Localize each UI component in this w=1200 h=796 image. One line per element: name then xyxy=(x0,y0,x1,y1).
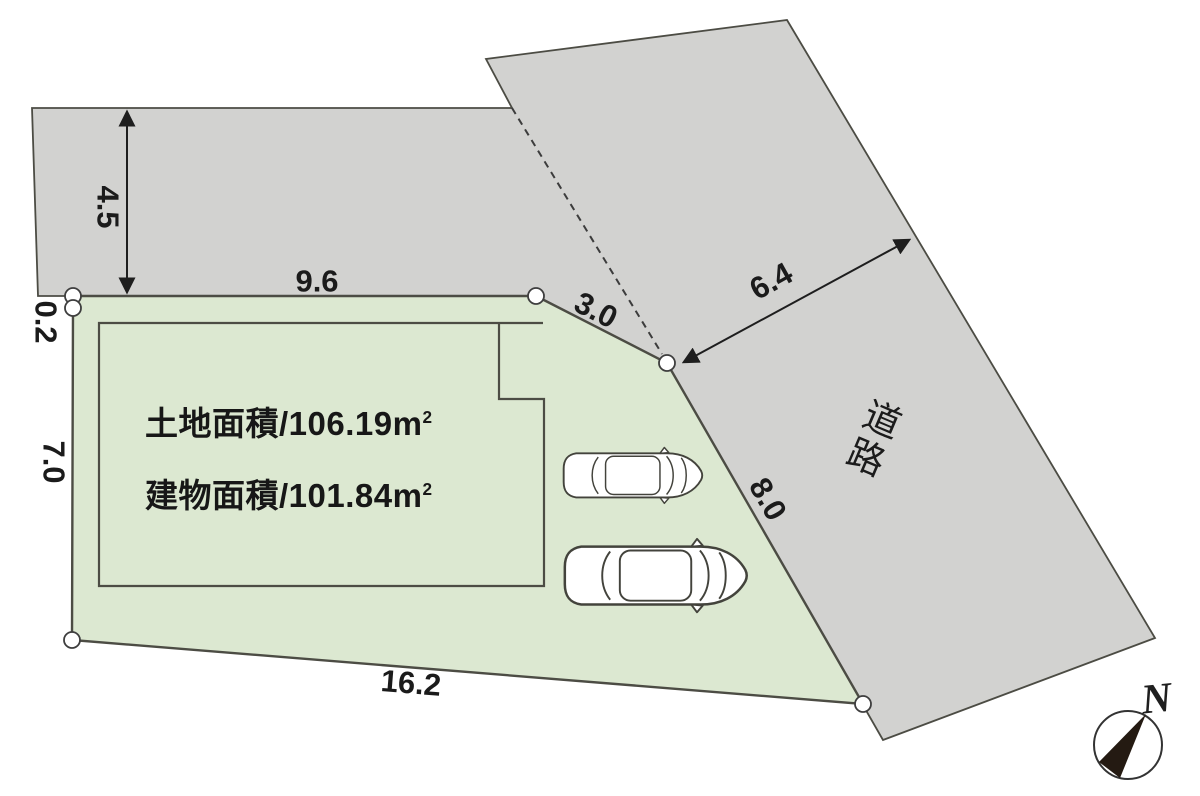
land-area-label: 土地面積 xyxy=(145,405,279,442)
building-area-unit-exp: 2 xyxy=(422,479,432,499)
plot-diagram: 4.5 9.6 0.2 7.0 3.0 6.4 8.0 16.2 N 土地面積/… xyxy=(0,0,1200,796)
boundary-point xyxy=(64,632,80,648)
land-area-text: 土地面積/106.19m2 xyxy=(145,407,433,440)
land-area-unit: m xyxy=(393,405,423,442)
dim-road-top-width: 4.5 xyxy=(91,185,126,228)
building-area-text: 建物面積/101.84m2 xyxy=(145,479,433,512)
building-area-unit: m xyxy=(393,477,423,514)
dim-north-edge: 9.6 xyxy=(295,264,338,299)
boundary-point xyxy=(528,288,544,304)
plot-diagram-canvas: 4.5 9.6 0.2 7.0 3.0 6.4 8.0 16.2 N xyxy=(0,0,1200,796)
land-area-unit-exp: 2 xyxy=(422,407,432,427)
boundary-point xyxy=(659,355,675,371)
land-area-value: 106.19 xyxy=(289,405,393,442)
compass: N xyxy=(1094,674,1176,779)
car-small xyxy=(564,447,703,503)
boundary-point xyxy=(855,696,871,712)
building-area-label: 建物面積 xyxy=(145,477,279,514)
building-area-value: 101.84 xyxy=(289,477,393,514)
dim-step-edge: 0.2 xyxy=(29,300,64,343)
boundary-point xyxy=(65,300,81,316)
land-area-separator: / xyxy=(279,405,289,442)
north-label: N xyxy=(1138,674,1176,723)
building-area-separator: / xyxy=(279,477,289,514)
dim-south-edge: 16.2 xyxy=(380,663,443,703)
dim-west-edge: 7.0 xyxy=(37,440,72,483)
car-large xyxy=(565,539,747,612)
